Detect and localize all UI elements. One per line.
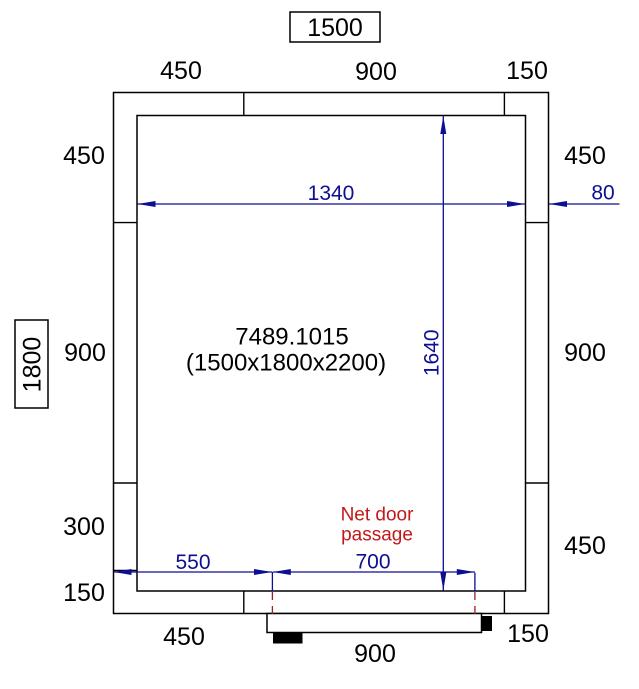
svg-text:Net door: Net door	[341, 505, 415, 526]
svg-text:150: 150	[507, 620, 549, 648]
svg-text:900: 900	[564, 339, 606, 367]
svg-text:1500: 1500	[307, 14, 363, 42]
svg-text:1800: 1800	[19, 337, 47, 393]
svg-text:900: 900	[355, 58, 397, 86]
svg-text:1340: 1340	[308, 182, 355, 205]
svg-text:900: 900	[354, 640, 396, 668]
svg-text:550: 550	[175, 551, 210, 574]
svg-text:450: 450	[564, 142, 606, 170]
svg-text:900: 900	[64, 339, 106, 367]
svg-text:passage: passage	[341, 525, 413, 546]
svg-text:700: 700	[355, 551, 390, 574]
svg-text:450: 450	[564, 532, 606, 560]
svg-text:450: 450	[163, 623, 205, 651]
svg-text:150: 150	[63, 579, 105, 607]
svg-text:450: 450	[63, 142, 105, 170]
svg-text:(1500x1800x2200): (1500x1800x2200)	[186, 350, 386, 377]
svg-text:450: 450	[160, 57, 202, 85]
svg-text:300: 300	[63, 513, 105, 541]
svg-text:150: 150	[506, 57, 548, 85]
svg-text:1640: 1640	[421, 329, 444, 376]
svg-text:7489.1015: 7489.1015	[235, 324, 348, 351]
svg-text:80: 80	[591, 182, 614, 205]
